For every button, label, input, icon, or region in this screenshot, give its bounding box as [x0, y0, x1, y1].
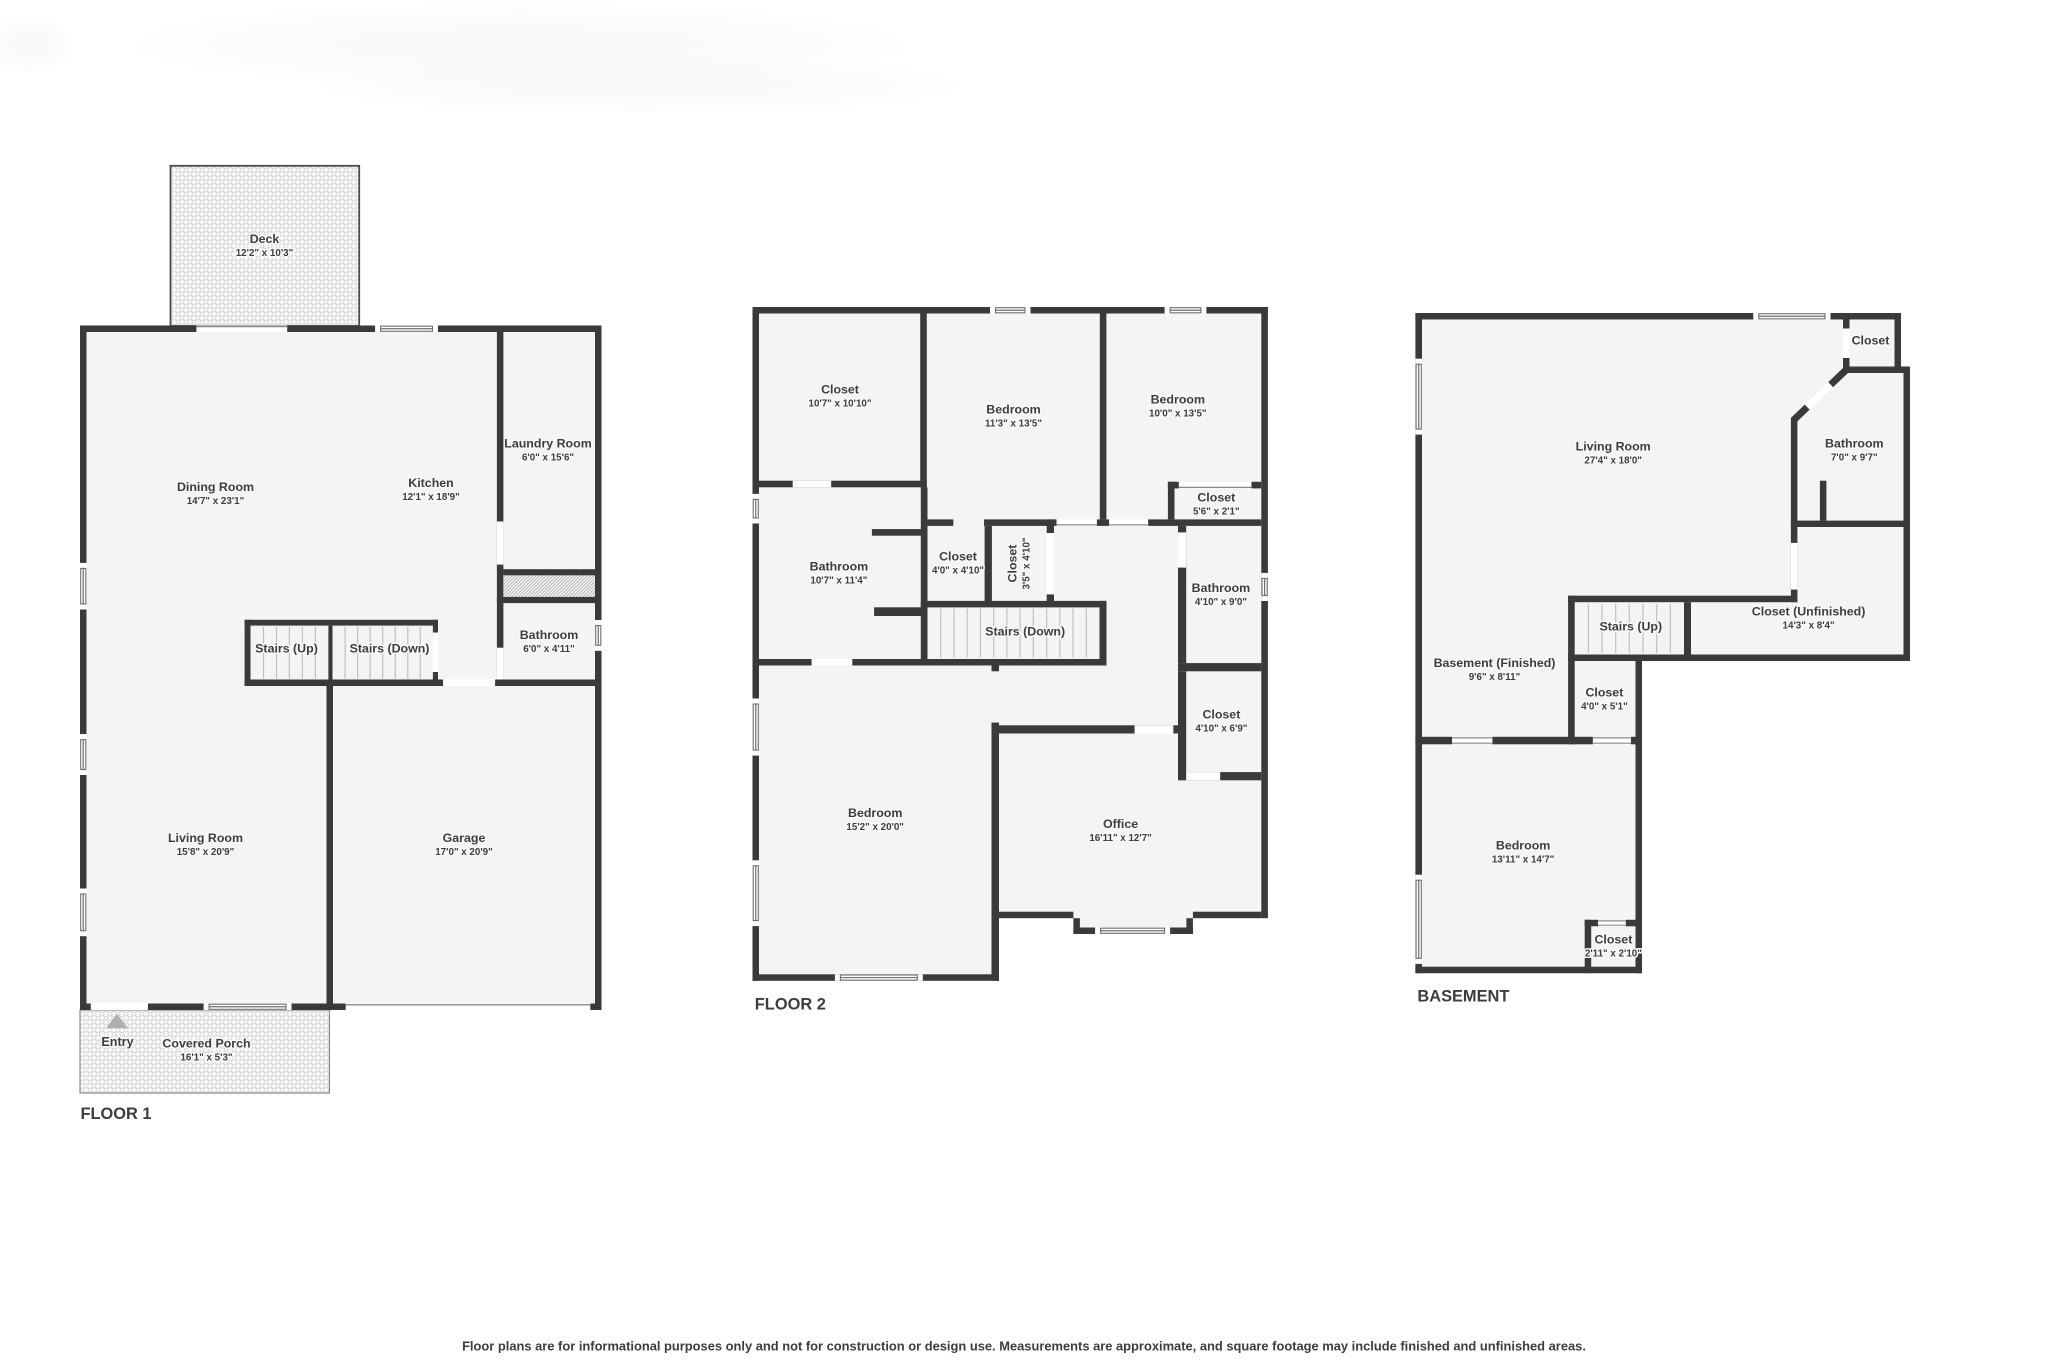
svg-text:11'3" x 13'5": 11'3" x 13'5": [985, 419, 1042, 430]
svg-text:Closet: Closet: [1202, 708, 1240, 722]
svg-text:BASEMENT: BASEMENT: [1417, 988, 1509, 1006]
svg-text:Deck: Deck: [250, 232, 280, 246]
svg-text:4'0" x 4'10": 4'0" x 4'10": [932, 566, 984, 577]
svg-text:Covered Porch: Covered Porch: [162, 1037, 250, 1051]
svg-text:Closet: Closet: [1197, 491, 1235, 505]
svg-text:Bedroom: Bedroom: [848, 806, 902, 820]
svg-text:14'7" x 23'1": 14'7" x 23'1": [187, 496, 245, 507]
svg-text:7'0" x 9'7": 7'0" x 9'7": [1831, 453, 1878, 464]
svg-text:Bathroom: Bathroom: [1825, 437, 1884, 451]
svg-text:Garage: Garage: [443, 831, 486, 845]
svg-text:Stairs (Down): Stairs (Down): [985, 625, 1065, 639]
svg-text:14'3" x 8'4": 14'3" x 8'4": [1783, 621, 1835, 632]
svg-text:4'10" x 9'0": 4'10" x 9'0": [1195, 597, 1247, 608]
svg-text:Closet: Closet: [821, 383, 859, 397]
svg-text:Stairs (Up): Stairs (Up): [255, 642, 318, 656]
svg-text:Bedroom: Bedroom: [1151, 393, 1205, 407]
svg-text:Closet: Closet: [1585, 686, 1623, 700]
svg-text:FLOOR 2: FLOOR 2: [755, 996, 826, 1014]
svg-text:Office: Office: [1103, 817, 1138, 831]
svg-text:Floor plans are for informatio: Floor plans are for informational purpos…: [462, 1339, 1586, 1354]
svg-text:Bedroom: Bedroom: [1496, 839, 1550, 853]
svg-text:Closet: Closet: [1006, 545, 1020, 583]
svg-text:10'7" x 11'4": 10'7" x 11'4": [810, 576, 867, 587]
svg-text:16'11" x 12'7": 16'11" x 12'7": [1089, 833, 1151, 844]
svg-text:Living Room: Living Room: [1576, 440, 1651, 454]
svg-text:Bedroom: Bedroom: [986, 403, 1040, 417]
svg-text:Stairs (Down): Stairs (Down): [350, 642, 430, 656]
svg-text:Kitchen: Kitchen: [408, 476, 453, 490]
svg-text:17'0" x 20'9": 17'0" x 20'9": [435, 847, 493, 858]
svg-text:16'1" x 5'3": 16'1" x 5'3": [180, 1053, 232, 1064]
svg-text:4'10" x 6'9": 4'10" x 6'9": [1195, 724, 1247, 735]
svg-text:Closet: Closet: [1852, 334, 1890, 348]
svg-text:Closet: Closet: [1594, 933, 1632, 947]
svg-text:6'0" x 15'6": 6'0" x 15'6": [522, 453, 574, 464]
svg-text:9'6" x 8'11": 9'6" x 8'11": [1469, 672, 1521, 683]
svg-text:Closet (Unfinished): Closet (Unfinished): [1752, 605, 1866, 619]
svg-text:Entry: Entry: [101, 1035, 133, 1049]
svg-text:Living Room: Living Room: [168, 831, 243, 845]
svg-text:10'0" x 13'5": 10'0" x 13'5": [1149, 409, 1207, 420]
svg-text:27'4" x 18'0": 27'4" x 18'0": [1584, 456, 1642, 467]
svg-text:6'0" x 4'11": 6'0" x 4'11": [523, 644, 575, 655]
svg-text:5'6" x 2'1": 5'6" x 2'1": [1193, 507, 1240, 518]
svg-text:Bathroom: Bathroom: [1192, 581, 1251, 595]
svg-text:10'7" x 10'10": 10'7" x 10'10": [809, 399, 872, 410]
svg-text:12'1" x 18'9": 12'1" x 18'9": [402, 492, 460, 503]
svg-text:Closet: Closet: [939, 550, 977, 564]
svg-text:Basement (Finished): Basement (Finished): [1434, 656, 1556, 670]
svg-text:12'2" x 10'3": 12'2" x 10'3": [236, 248, 294, 259]
svg-text:Bathroom: Bathroom: [810, 560, 869, 574]
svg-text:13'11" x 14'7": 13'11" x 14'7": [1492, 855, 1554, 866]
svg-text:3'5" x 4'10": 3'5" x 4'10": [1022, 537, 1033, 589]
svg-text:Bathroom: Bathroom: [520, 628, 579, 642]
svg-text:Laundry Room: Laundry Room: [504, 437, 591, 451]
svg-text:FLOOR 1: FLOOR 1: [81, 1105, 152, 1123]
svg-text:Stairs (Up): Stairs (Up): [1599, 620, 1662, 634]
svg-text:4'0" x 5'1": 4'0" x 5'1": [1581, 702, 1628, 713]
svg-text:2'11" x 2'10": 2'11" x 2'10": [1585, 949, 1642, 960]
svg-text:15'8" x 20'9": 15'8" x 20'9": [177, 847, 235, 858]
svg-text:15'2" x 20'0": 15'2" x 20'0": [846, 822, 904, 833]
svg-text:Dining Room: Dining Room: [177, 480, 254, 494]
